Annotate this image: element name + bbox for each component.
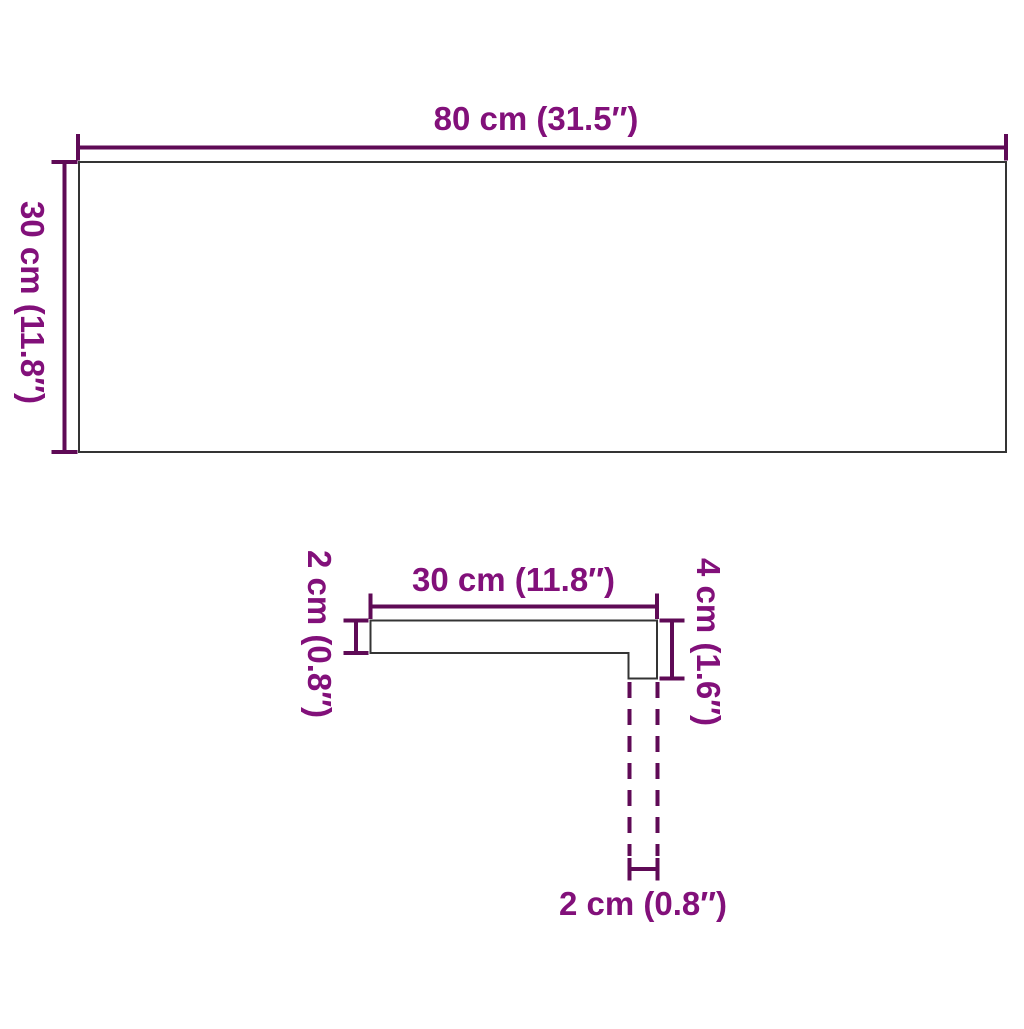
svg-text:2 cm (0.8″): 2 cm (0.8″): [301, 550, 338, 718]
svg-text:2 cm (0.8″): 2 cm (0.8″): [559, 885, 727, 922]
svg-text:30 cm (11.8″): 30 cm (11.8″): [412, 561, 615, 598]
svg-text:80 cm (31.5″): 80 cm (31.5″): [434, 100, 639, 137]
svg-text:4 cm (1.6″): 4 cm (1.6″): [690, 558, 727, 726]
svg-text:30 cm (11.8″): 30 cm (11.8″): [14, 201, 51, 404]
